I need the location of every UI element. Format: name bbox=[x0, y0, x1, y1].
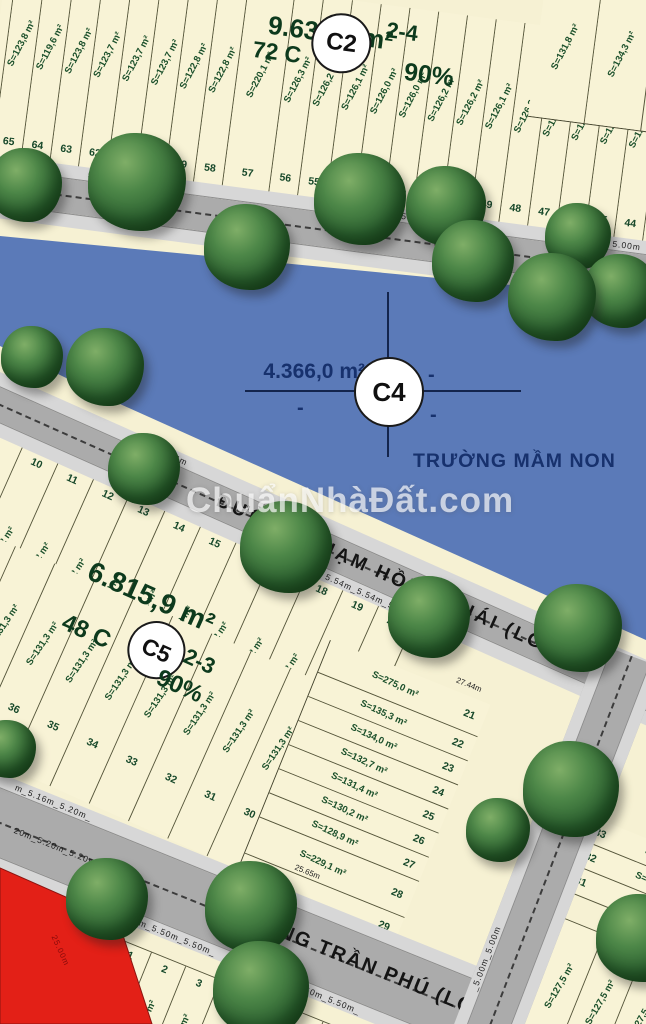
watermark: ChuẩnNhàĐất.com bbox=[186, 481, 514, 521]
tree bbox=[205, 861, 297, 953]
tree bbox=[108, 433, 180, 505]
tree bbox=[66, 858, 148, 940]
tree bbox=[534, 584, 622, 672]
plot-area-label: S=127,5 m² bbox=[623, 995, 646, 1024]
tree bbox=[466, 798, 530, 862]
tree bbox=[88, 133, 186, 231]
school-name-label: TRƯỜNG MẦM NON bbox=[413, 450, 616, 473]
c4-dash: - bbox=[297, 397, 304, 420]
c4-badge: C4 bbox=[354, 357, 424, 427]
tree bbox=[1, 326, 63, 388]
tree bbox=[523, 741, 619, 837]
c4-dash: - bbox=[428, 364, 435, 387]
tree bbox=[204, 204, 290, 290]
land-plot-map: S=123,8 m² 65 S=119,6 m² 64 S=123,8 m² 6… bbox=[0, 0, 646, 1024]
plot-area-label: S=127,5 m² bbox=[542, 962, 576, 1011]
c4-area-label: 4.366,0 m² bbox=[225, 360, 365, 384]
plot-area-label: S=127,5 m² bbox=[583, 978, 617, 1024]
tree bbox=[432, 220, 514, 302]
tree bbox=[388, 576, 470, 658]
c4-dash: - bbox=[430, 404, 437, 427]
tree bbox=[508, 253, 596, 341]
tree bbox=[213, 941, 309, 1024]
tree bbox=[66, 328, 144, 406]
tree bbox=[314, 153, 406, 245]
